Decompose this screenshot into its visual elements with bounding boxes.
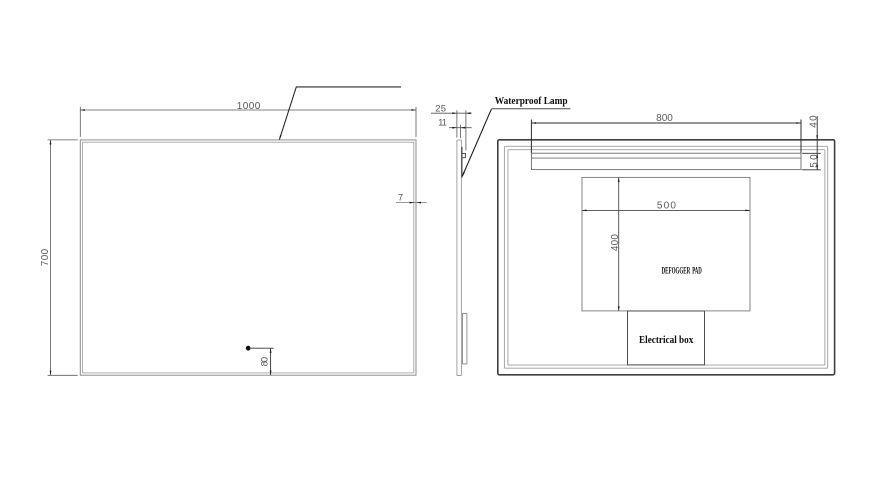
svg-text:25: 25 — [435, 103, 446, 114]
svg-text:Electrical box: Electrical box — [639, 334, 694, 346]
svg-text:800: 800 — [656, 113, 673, 124]
svg-text:80: 80 — [259, 357, 270, 367]
svg-text:400: 400 — [610, 234, 621, 251]
svg-text:11: 11 — [438, 118, 447, 129]
svg-text:1000: 1000 — [237, 101, 261, 112]
svg-text:50: 50 — [809, 154, 820, 168]
svg-text:500: 500 — [657, 200, 676, 211]
svg-text:40: 40 — [808, 115, 819, 128]
svg-text:7: 7 — [398, 192, 403, 203]
svg-text:PAD: PAD — [692, 266, 702, 276]
svg-text:DEFOGGER: DEFOGGER — [662, 266, 691, 276]
svg-text:700: 700 — [40, 248, 51, 266]
svg-text:Waterproof Lamp: Waterproof Lamp — [495, 96, 568, 107]
